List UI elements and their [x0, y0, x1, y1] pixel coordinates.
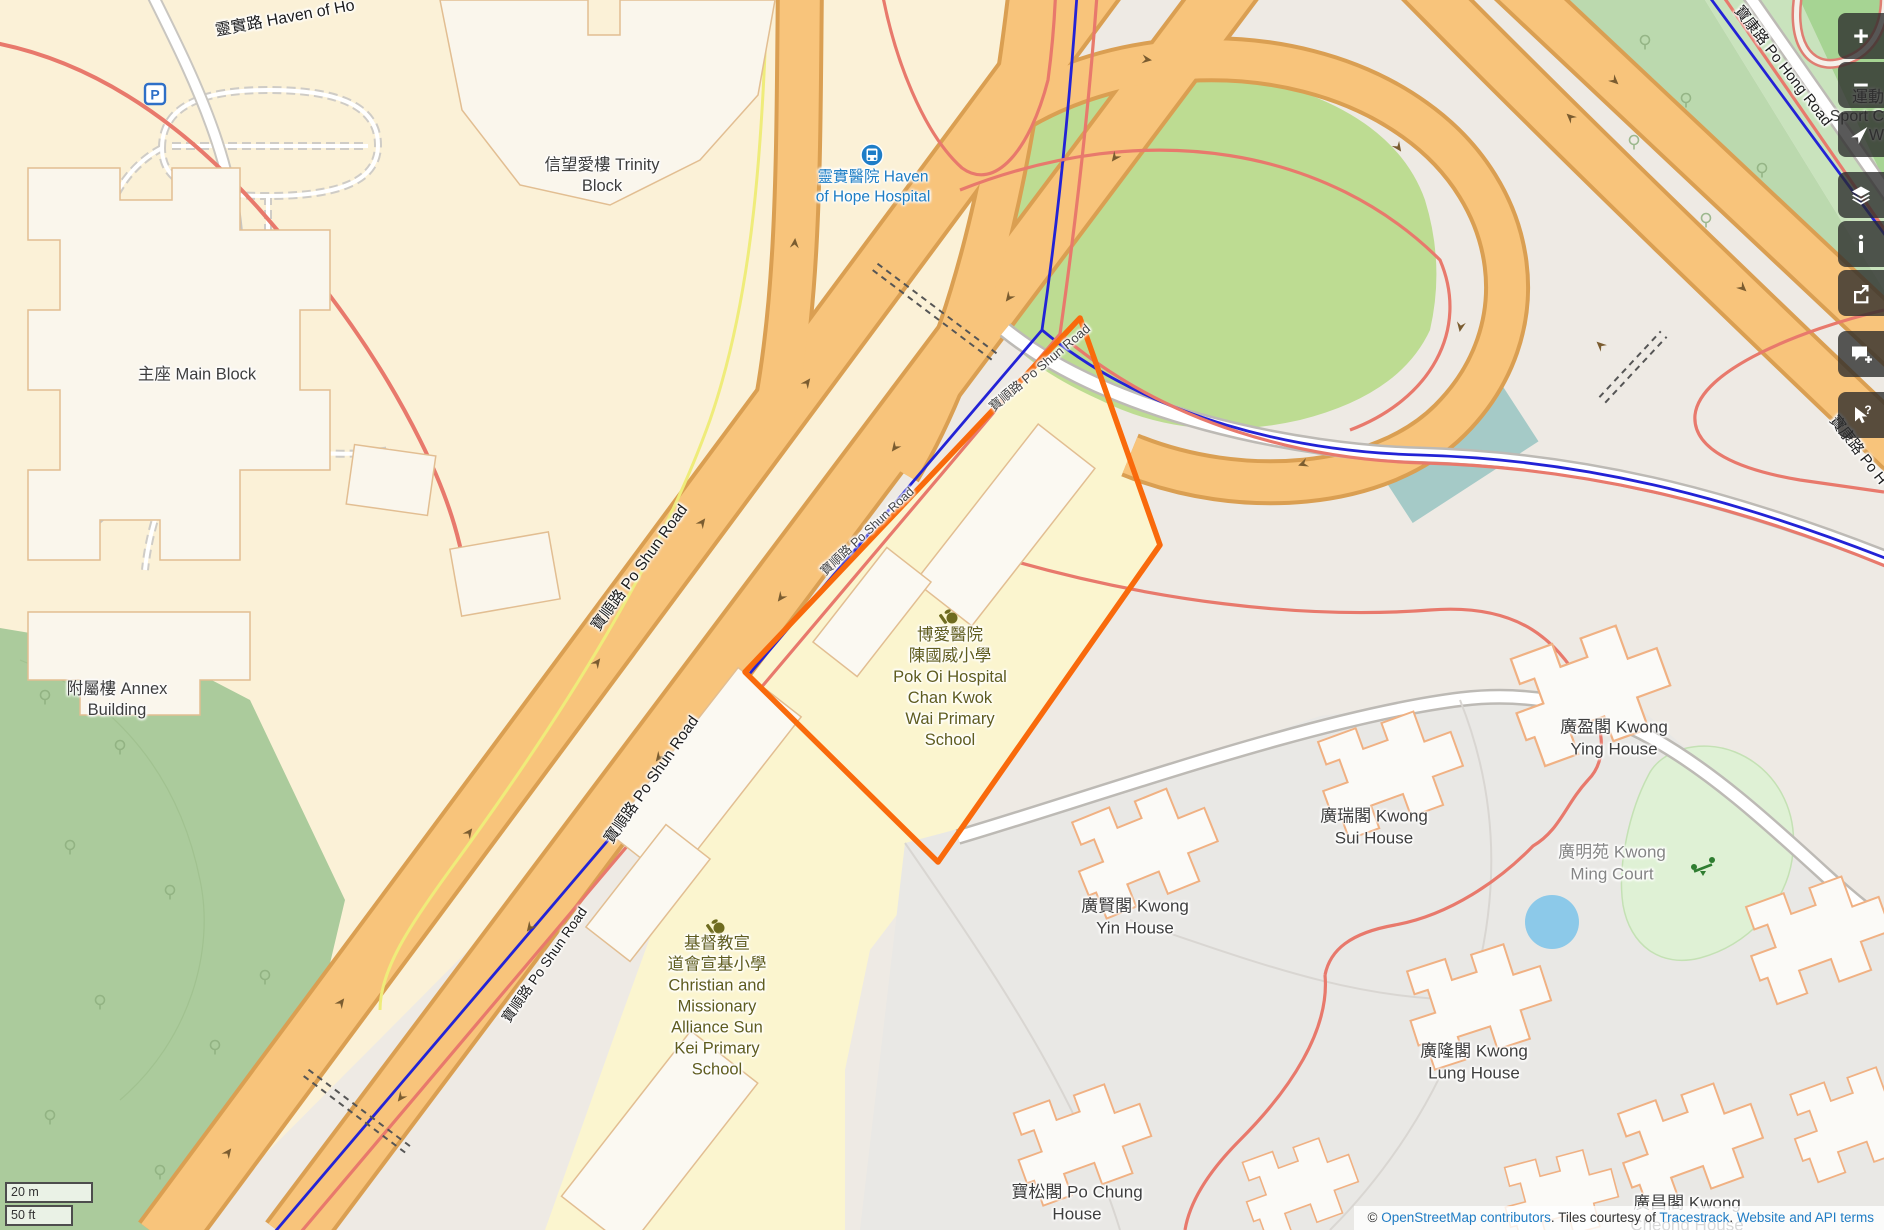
zoom-out-button[interactable]: −	[1838, 62, 1884, 108]
plus-icon: +	[1853, 21, 1869, 52]
locate-button[interactable]	[1838, 111, 1884, 157]
bus-stop-icon	[861, 144, 883, 166]
map-app: P 靈實路 Haven of Ho 寶順路 Po Shun Road 寶順路 P…	[0, 0, 1884, 1230]
label-pok-oi-school: 博愛醫院陳國威小學 Pok Oi HospitalChan Kwok Wai P…	[893, 625, 1007, 751]
add-note-button[interactable]	[1838, 331, 1884, 377]
svg-text:P: P	[150, 87, 159, 103]
share-button[interactable]	[1838, 270, 1884, 316]
map-canvas[interactable]: P	[0, 0, 1884, 1230]
map-controls: + − ?	[1838, 13, 1884, 441]
attribution-bar: © OpenStreetMap contributors. Tiles cour…	[1354, 1206, 1884, 1230]
copyright-symbol: ©	[1368, 1210, 1378, 1225]
zoom-in-button[interactable]: +	[1838, 13, 1884, 59]
tracestrack-link[interactable]: Tracestrack	[1659, 1210, 1729, 1225]
attribution-text: . Tiles courtesy of	[1551, 1210, 1660, 1225]
note-icon	[1850, 343, 1873, 366]
osm-contributors-link[interactable]: OpenStreetMap contributors	[1381, 1210, 1551, 1225]
label-trinity-block: 信望愛樓 TrinityBlock	[545, 155, 660, 197]
label-kwong-sui-house: 廣瑞閣 KwongSui House	[1320, 805, 1428, 848]
label-haven-of-hope-hospital: 靈實醫院 Havenof Hope Hospital	[816, 167, 931, 206]
label-kwong-yin-house: 廣賢閣 KwongYin House	[1081, 895, 1189, 938]
layers-icon	[1850, 184, 1872, 206]
scale-bar: 20 m 50 ft	[5, 1182, 93, 1226]
layers-button[interactable]	[1838, 172, 1884, 218]
pond	[1525, 895, 1579, 949]
query-features-button[interactable]: ?	[1838, 392, 1884, 438]
parking-icon: P	[145, 84, 165, 104]
share-icon	[1850, 282, 1872, 304]
attribution-sep: .	[1729, 1210, 1737, 1225]
locate-arrow-icon	[1850, 123, 1872, 145]
query-pointer-icon: ?	[1850, 404, 1873, 427]
info-button[interactable]	[1838, 221, 1884, 267]
scale-metric: 20 m	[5, 1182, 93, 1203]
label-po-chung-house: 寶松閣 Po ChungHouse	[1011, 1181, 1142, 1224]
svg-text:?: ?	[1864, 404, 1871, 417]
label-kwong-ming-court: 廣明苑 KwongMing Court	[1558, 841, 1666, 884]
label-kwong-ying-house: 廣盈閣 KwongYing House	[1560, 716, 1668, 759]
info-icon	[1850, 233, 1872, 255]
label-sun-kei-school: 基督教宣道會宣基小學 Christian andMissionary Allia…	[668, 934, 767, 1081]
terms-link[interactable]: Website and API terms	[1737, 1210, 1874, 1225]
label-kwong-lung-house: 廣隆閣 KwongLung House	[1420, 1040, 1528, 1083]
label-annex-building: 附屬樓 AnnexBuilding	[67, 679, 168, 721]
label-main-block: 主座 Main Block	[138, 365, 256, 386]
minus-icon: −	[1853, 70, 1869, 101]
scale-imperial: 50 ft	[5, 1205, 73, 1226]
